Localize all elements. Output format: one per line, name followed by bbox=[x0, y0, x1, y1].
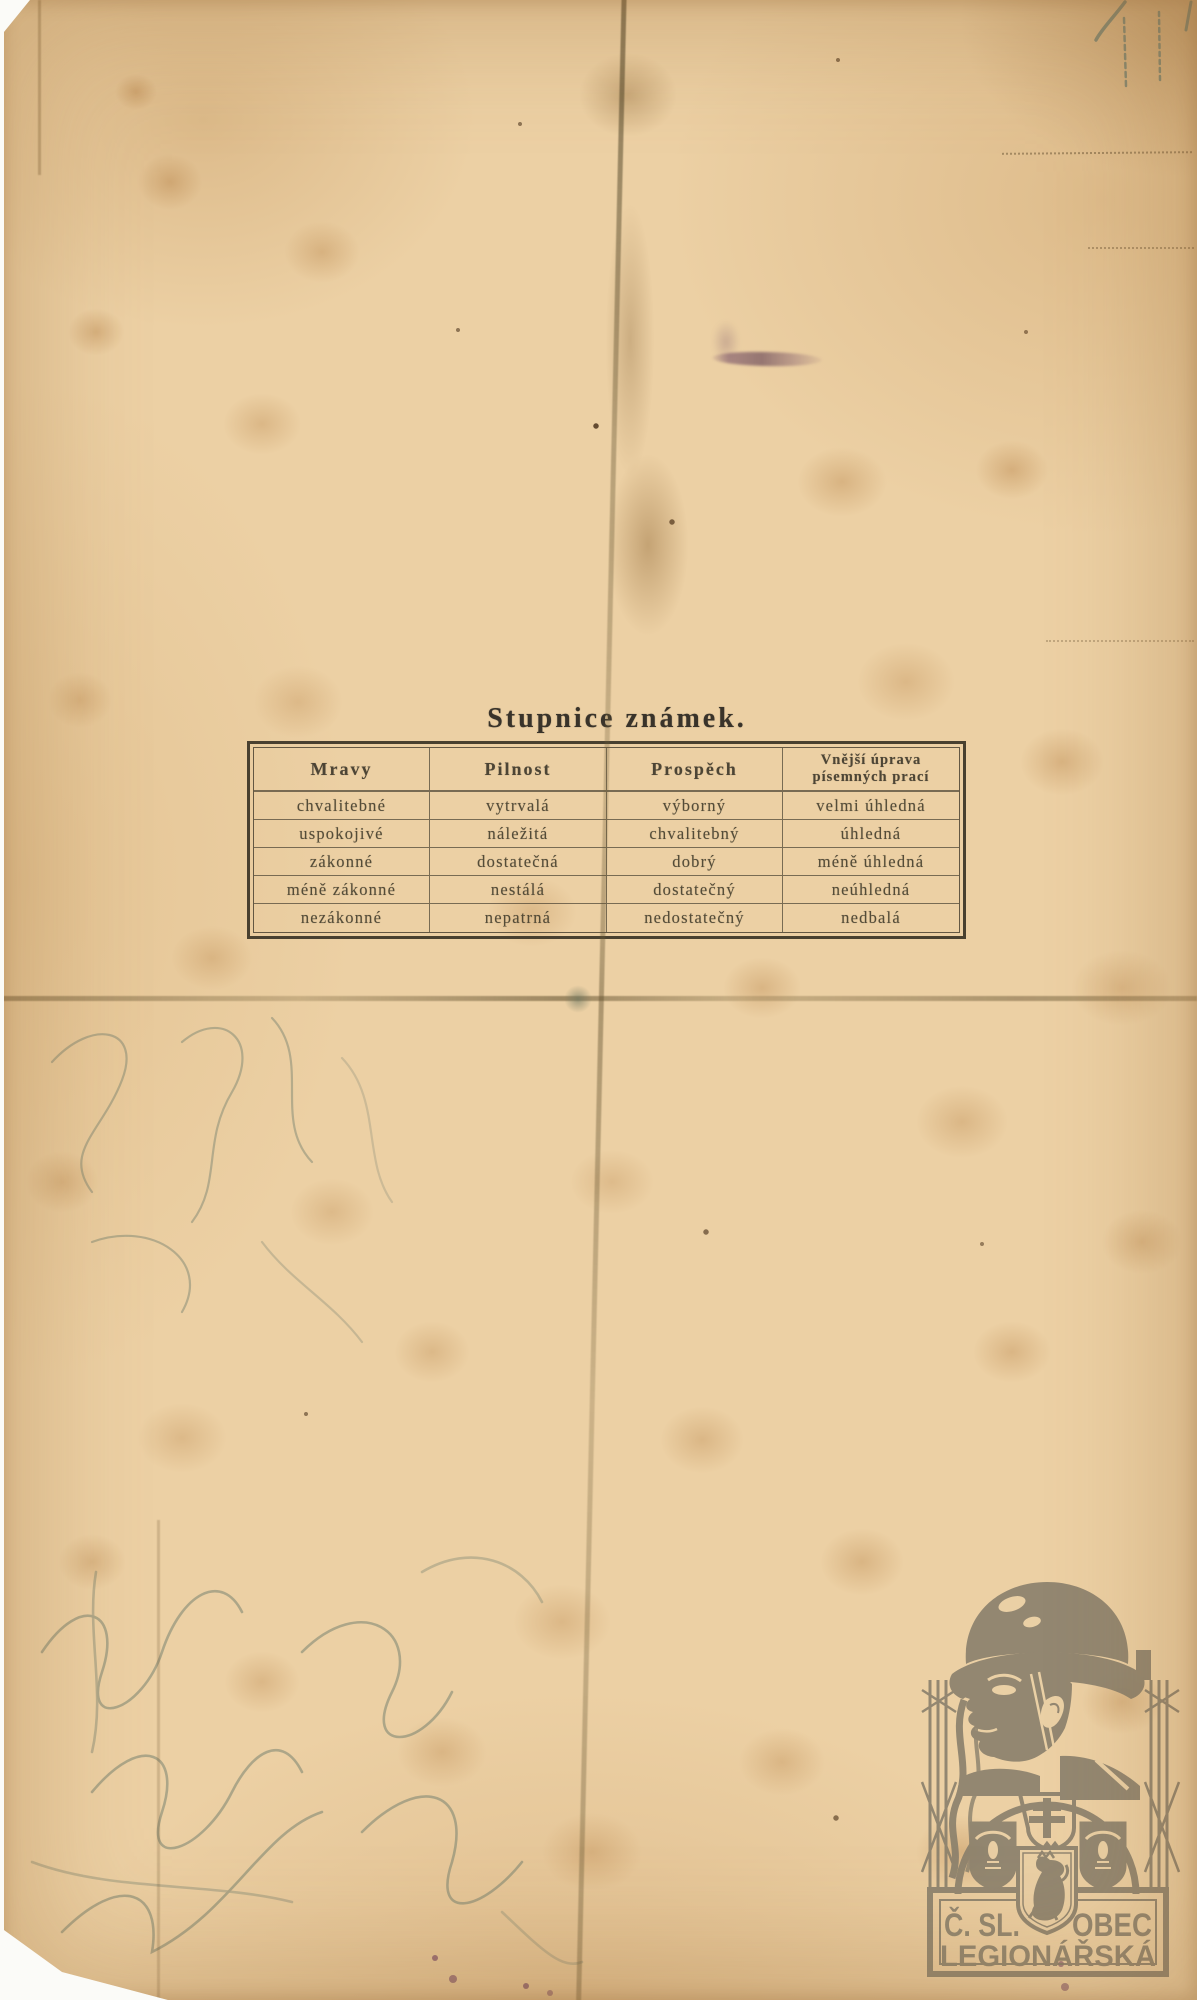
document-title: Stupnice známek. bbox=[247, 703, 987, 735]
lion-shield-icon bbox=[1018, 1848, 1076, 1933]
eagle-shield-left-icon bbox=[970, 1822, 1016, 1890]
horizontal-fold-crease bbox=[0, 996, 1197, 1001]
table-header-pilnost: Pilnost bbox=[430, 748, 607, 792]
table-cell: uspokojivé bbox=[254, 820, 430, 848]
table-cell: vytrvalá bbox=[430, 792, 607, 820]
scanned-document: Stupnice známek. Mravy Pilnost Prospěch … bbox=[0, 0, 1197, 2000]
table-cell: chvalitebné bbox=[254, 792, 430, 820]
table-cell: chvalitebný bbox=[607, 820, 783, 848]
stamp-text-obec: OBEC bbox=[1072, 1907, 1152, 1943]
scratch-line bbox=[1088, 247, 1194, 249]
paper-sheet: Stupnice známek. Mravy Pilnost Prospěch … bbox=[0, 0, 1197, 2000]
table-cell: náležitá bbox=[430, 820, 607, 848]
table-header-prospech: Prospěch bbox=[607, 748, 783, 792]
table-header-uprava: Vnější úprava písemných prací bbox=[783, 748, 959, 792]
table-cell: nepatrná bbox=[430, 904, 607, 932]
table-cell: nedostatečný bbox=[607, 904, 783, 932]
table-cell: zákonné bbox=[254, 848, 430, 876]
table-cell: neúhledná bbox=[783, 876, 959, 904]
table-cell: velmi úhledná bbox=[783, 792, 959, 820]
stamp-frame-right bbox=[1145, 1680, 1179, 1890]
pencil-scribbles-left-icon bbox=[30, 1000, 430, 1380]
ink-specks bbox=[0, 0, 4, 4]
table-cell: nezákonné bbox=[254, 904, 430, 932]
ink-smudge bbox=[712, 351, 822, 367]
table-cell: dostatečný bbox=[607, 876, 783, 904]
table-cell: úhledná bbox=[783, 820, 959, 848]
eagle-shield-right-icon bbox=[1080, 1822, 1126, 1890]
pen-stroke-icon bbox=[1080, 0, 1197, 100]
table-cell: nedbalá bbox=[783, 904, 959, 932]
scratch-line bbox=[1046, 640, 1194, 642]
pencil-scribbles-bottom-icon bbox=[0, 1530, 620, 2000]
legion-stamp: Č. SL. OBEC LEGIONÁŘSKÁ bbox=[900, 1542, 1197, 2000]
table-cell: výborný bbox=[607, 792, 783, 820]
scratch-line bbox=[1002, 151, 1192, 155]
table-cell: nestálá bbox=[430, 876, 607, 904]
table-cell: dostatečná bbox=[430, 848, 607, 876]
fold-intersection-stain bbox=[564, 985, 592, 1013]
table-header-mravy: Mravy bbox=[254, 748, 430, 792]
top-left-crease bbox=[38, 0, 41, 175]
double-cross-shield-icon bbox=[1020, 1794, 1074, 1849]
stamp-text-legionarska: LEGIONÁŘSKÁ bbox=[940, 1939, 1156, 1973]
table-cell: méně zákonné bbox=[254, 876, 430, 904]
bottom-left-crease bbox=[157, 1520, 160, 2000]
table-cell: méně úhledná bbox=[783, 848, 959, 876]
stamp-text-abbrev: Č. SL. bbox=[944, 1907, 1020, 1943]
stamp-frame-left bbox=[922, 1680, 956, 1890]
table-cell: dobrý bbox=[607, 848, 783, 876]
